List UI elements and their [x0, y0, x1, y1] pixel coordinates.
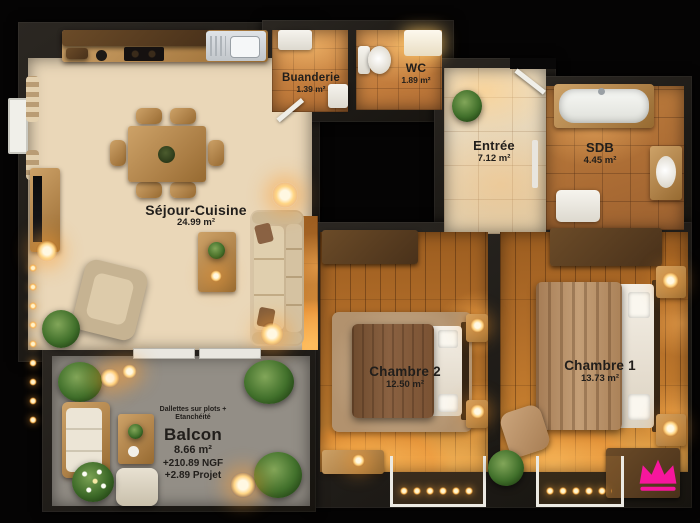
- string-lights-icon: [28, 262, 38, 424]
- pendant-lamp-icon: [36, 240, 58, 262]
- bench-lamp-icon: [352, 454, 365, 467]
- floor-lamp-icon: [260, 322, 284, 346]
- dining-chair: [170, 182, 196, 198]
- bedside-lamp-icon: [662, 272, 679, 289]
- shower-mat: [556, 190, 600, 222]
- bedside-lamp-icon: [662, 420, 679, 437]
- bathtub-faucet: [598, 88, 605, 95]
- bed1-pillow: [628, 394, 650, 420]
- room-area: 1.39 m²: [268, 85, 354, 95]
- window-left: [8, 98, 28, 154]
- washing-machine: [278, 30, 312, 50]
- balcony-plant: [58, 362, 102, 402]
- bed1-pillow: [628, 292, 650, 318]
- table-centerpiece-plant: [158, 146, 175, 163]
- cooktop: [124, 47, 164, 61]
- kettle: [96, 50, 107, 61]
- dining-chair: [110, 140, 126, 166]
- dining-chair: [170, 108, 196, 124]
- curtain-top: [26, 76, 39, 122]
- room-name: Chambre 1: [548, 358, 652, 374]
- balcon-note-line1: Dallettes sur plots +: [118, 406, 268, 414]
- candle-row-icon: [544, 486, 612, 496]
- balcony-plant: [244, 360, 294, 404]
- bed2-pillow: [438, 330, 458, 348]
- kitchen-upper-shelf: [62, 30, 210, 46]
- cutting-board: [66, 48, 88, 59]
- lantern-icon: [122, 364, 137, 379]
- room-area: 7.12 m²: [452, 154, 536, 165]
- tv-screen: [33, 176, 42, 242]
- level-projet: +2.89 Projet: [118, 470, 268, 483]
- wardrobe-chambre2: [322, 230, 418, 264]
- sofa-back-cushions: [286, 224, 302, 332]
- bathtub: [559, 89, 649, 123]
- dining-chair: [208, 140, 224, 166]
- hall-wood-strip: [302, 216, 318, 350]
- candle-row-icon: [398, 486, 474, 496]
- room-label-entree: Entrée 7.12 m²: [452, 139, 536, 165]
- room-area: 13.73 m²: [548, 374, 652, 385]
- crown-icon: [634, 456, 682, 500]
- flower-pot: [72, 462, 114, 502]
- wc-vanity-lit: [404, 30, 442, 56]
- room-label-sdb: SDB 4.45 m²: [568, 141, 632, 167]
- sink-drainboard: [210, 36, 226, 56]
- room-name: SDB: [568, 141, 632, 156]
- window-chambre2: [390, 456, 486, 507]
- room-label-buanderie: Buanderie 1.39 m²: [268, 72, 354, 95]
- sink-basin: [230, 36, 260, 58]
- plant: [42, 310, 80, 348]
- coffee-table: [198, 232, 236, 292]
- dining-chair: [136, 108, 162, 124]
- balcony-door-sill: [199, 348, 261, 359]
- room-area: 8.66 m²: [118, 444, 268, 457]
- entree-plant: [452, 90, 482, 122]
- room-area: 1.89 m²: [388, 76, 444, 86]
- room-name: Balcon: [118, 425, 268, 445]
- bedside-lamp-icon: [470, 318, 485, 333]
- window-chambre1: [536, 456, 624, 507]
- room-label-sejour-cuisine: Séjour-Cuisine 24.99 m²: [116, 202, 276, 229]
- bedside-lamp-icon: [470, 404, 485, 419]
- room-name: WC: [388, 62, 444, 76]
- lantern-icon: [100, 368, 120, 388]
- sdb-washbasin: [656, 156, 676, 188]
- wardrobe-chambre1: [550, 228, 662, 266]
- room-name: Séjour-Cuisine: [116, 202, 276, 218]
- room-name: Chambre 2: [354, 364, 456, 380]
- room-label-chambre-2: Chambre 2 12.50 m²: [354, 364, 456, 390]
- bed1-blanket: [536, 282, 622, 430]
- dining-chair: [136, 182, 162, 198]
- room-area: 24.99 m²: [116, 218, 276, 229]
- coffee-table-plant: [208, 242, 225, 259]
- plant: [488, 450, 524, 486]
- bed2-pillow: [438, 394, 458, 412]
- room-area: 4.45 m²: [568, 156, 632, 167]
- room-area: 12.50 m²: [354, 380, 456, 391]
- balcon-annotation-block: Dallettes sur plots + Etanchéité Balcon …: [118, 406, 268, 483]
- coffee-table-candle-icon: [210, 270, 222, 282]
- level-ngf: +210.89 NGF: [118, 458, 268, 471]
- balcon-note-line2: Etanchéité: [118, 414, 268, 422]
- balcony-door-sill: [133, 348, 195, 359]
- room-label-chambre-1: Chambre 1 13.73 m²: [548, 358, 652, 384]
- floor-plan-canvas: Séjour-Cuisine 24.99 m² Buanderie 1.39 m…: [0, 0, 700, 523]
- room-name: Entrée: [452, 139, 536, 154]
- room-label-wc: WC 1.89 m²: [388, 62, 444, 86]
